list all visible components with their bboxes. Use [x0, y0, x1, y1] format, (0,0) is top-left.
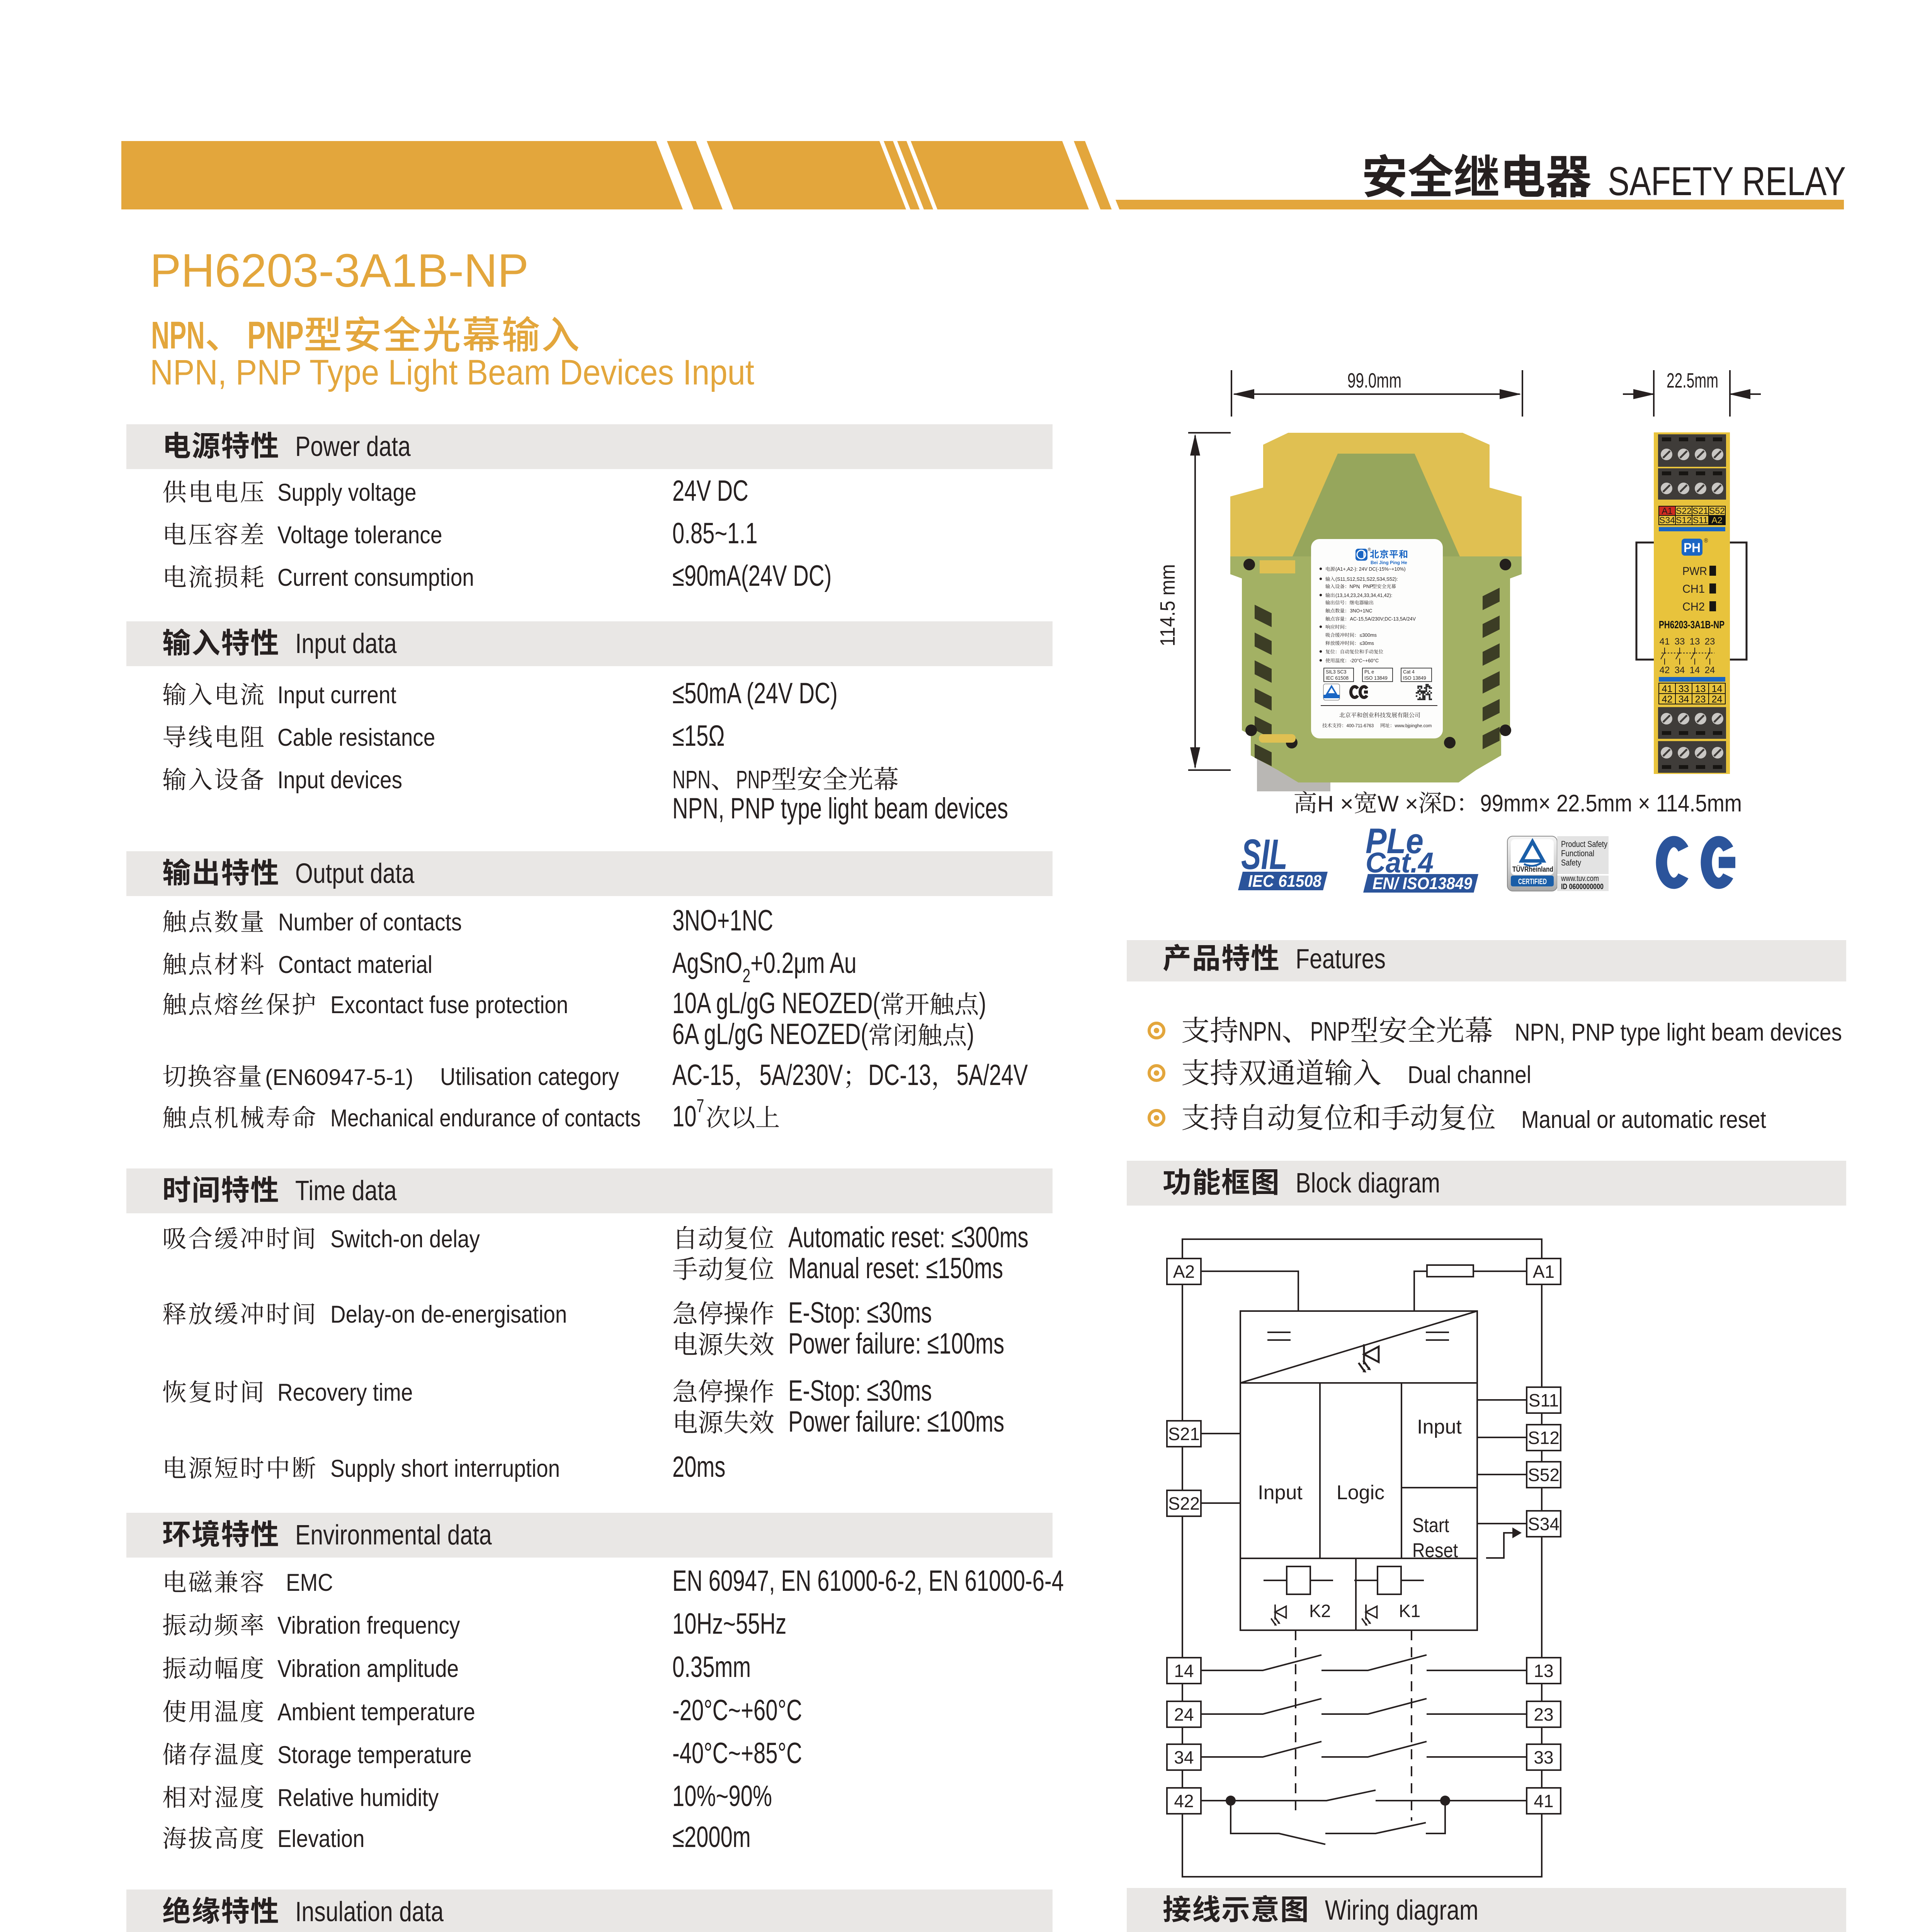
- svg-text:2: 2: [743, 965, 751, 986]
- svg-text:≤15Ω: ≤15Ω: [672, 719, 725, 752]
- svg-text:AC-15,5A/230V;DC-13,5A/24V: AC-15,5A/230V;DC-13,5A/24V: [1350, 616, 1416, 622]
- svg-text:S52: S52: [1528, 1465, 1560, 1485]
- svg-text:Contact material: Contact material: [278, 951, 432, 978]
- svg-text:Input current: Input current: [277, 682, 396, 709]
- svg-text:A1: A1: [1662, 506, 1672, 516]
- svg-text:S22: S22: [1168, 1493, 1200, 1514]
- svg-text:(S11,S12,S21,S22,S34,S52):: (S11,S12,S21,S22,S34,S52):: [1335, 577, 1398, 582]
- svg-text:S34: S34: [1528, 1514, 1560, 1534]
- svg-text:AC-15: AC-15: [672, 1059, 734, 1092]
- svg-text:10: 10: [672, 1100, 697, 1133]
- svg-text:PNP: PNP: [1363, 584, 1373, 589]
- svg-text:®: ®: [1704, 537, 1708, 544]
- svg-text:Utilisation category: Utilisation category: [440, 1063, 619, 1090]
- svg-text:34: 34: [1679, 694, 1689, 705]
- svg-text:PH6203-3A1B-NP: PH6203-3A1B-NP: [1659, 619, 1725, 631]
- svg-text:≤50mA (24V DC): ≤50mA (24V DC): [672, 677, 838, 710]
- svg-text:5A/24V: 5A/24V: [957, 1059, 1028, 1092]
- svg-text:13: 13: [1695, 684, 1706, 694]
- svg-text:): ): [967, 1018, 975, 1051]
- svg-text:NPN: NPN: [151, 314, 205, 357]
- svg-text:Wiring diagram: Wiring diagram: [1325, 1895, 1478, 1926]
- svg-text:24: 24: [1174, 1704, 1194, 1725]
- svg-text:SIL: SIL: [1241, 831, 1287, 878]
- svg-text:Power failure: ≤100ms: Power failure: ≤100ms: [788, 1327, 1004, 1360]
- svg-text:-20°C~+60°C: -20°C~+60°C: [672, 1694, 802, 1727]
- svg-text:Switch-on delay: Switch-on delay: [330, 1226, 480, 1253]
- svg-text:AgSnO: AgSnO: [672, 947, 742, 980]
- svg-text:ID 0600000000: ID 0600000000: [1561, 883, 1604, 891]
- svg-text:41: 41: [1662, 684, 1673, 694]
- svg-text:Dual channel: Dual channel: [1408, 1061, 1531, 1088]
- svg-text:www.tuv.com: www.tuv.com: [1561, 874, 1599, 883]
- svg-text:Relative humidity: Relative humidity: [277, 1784, 439, 1811]
- svg-text:A2: A2: [1173, 1262, 1195, 1282]
- svg-text:Delay-on de-energisation: Delay-on de-energisation: [330, 1301, 567, 1328]
- svg-text:NPN: NPN: [672, 765, 711, 794]
- svg-text:Block diagram: Block diagram: [1296, 1168, 1440, 1199]
- svg-text:-40°C~+85°C: -40°C~+85°C: [672, 1737, 802, 1770]
- svg-text:SAFETY RELAY: SAFETY RELAY: [1608, 159, 1846, 204]
- svg-text:PWR: PWR: [1682, 565, 1707, 578]
- svg-text:Number of contacts: Number of contacts: [278, 909, 462, 936]
- svg-text:24: 24: [1712, 694, 1723, 705]
- svg-text:Recovery time: Recovery time: [277, 1379, 413, 1406]
- svg-text:Insulation data: Insulation data: [295, 1896, 444, 1927]
- svg-text:Mechanical endurance of contac: Mechanical endurance of contacts: [330, 1105, 641, 1132]
- svg-text:5A/230V: 5A/230V: [760, 1059, 843, 1092]
- svg-text:K1: K1: [1399, 1601, 1420, 1621]
- svg-text:Manual or automatic reset: Manual or automatic reset: [1521, 1106, 1766, 1133]
- svg-text:Supply voltage: Supply voltage: [277, 479, 417, 506]
- svg-text:CERTIFIED: CERTIFIED: [1518, 878, 1547, 886]
- svg-text:IEC 61508: IEC 61508: [1326, 675, 1349, 681]
- svg-text:ISO 13849: ISO 13849: [1403, 675, 1426, 681]
- svg-text:Automatic reset: ≤300ms: Automatic reset: ≤300ms: [788, 1221, 1029, 1254]
- svg-text:Voltage tolerance: Voltage tolerance: [277, 522, 442, 549]
- svg-text:34: 34: [1174, 1747, 1194, 1767]
- svg-text:41: 41: [1660, 636, 1670, 647]
- svg-text:Storage temperature: Storage temperature: [277, 1742, 472, 1769]
- svg-text:24V DC: 24V DC: [672, 474, 748, 507]
- svg-text:13: 13: [1690, 636, 1700, 647]
- svg-text:CH1: CH1: [1682, 583, 1705, 595]
- svg-text:33: 33: [1679, 684, 1689, 694]
- svg-text:34: 34: [1675, 665, 1685, 675]
- svg-text:Functional: Functional: [1561, 849, 1594, 858]
- svg-text:S21: S21: [1692, 506, 1708, 516]
- svg-text:(EN60947-5-1): (EN60947-5-1): [265, 1065, 413, 1090]
- svg-text:Cable resistance: Cable resistance: [277, 724, 435, 751]
- svg-text:Safety: Safety: [1561, 858, 1581, 867]
- svg-text:Vibration amplitude: Vibration amplitude: [277, 1655, 459, 1682]
- svg-text:A1: A1: [1533, 1262, 1554, 1282]
- svg-text:20ms: 20ms: [672, 1451, 726, 1483]
- svg-text:IEC 61508: IEC 61508: [1248, 872, 1321, 891]
- svg-text:+0.2μm Au: +0.2μm Au: [750, 947, 857, 980]
- svg-text:Current consumption: Current consumption: [277, 564, 474, 591]
- svg-text:24: 24: [1705, 665, 1715, 675]
- svg-text:CH2: CH2: [1682, 600, 1705, 613]
- svg-text:ISO 13849: ISO 13849: [1364, 675, 1388, 681]
- svg-text:(A1+,A2-): 24V DC(-15%~+10%): (A1+,A2-): 24V DC(-15%~+10%): [1335, 566, 1406, 572]
- svg-text:S22: S22: [1676, 506, 1692, 516]
- svg-text:E-Stop: ≤30ms: E-Stop: ≤30ms: [788, 1296, 932, 1329]
- svg-text:PNP: PNP: [736, 765, 771, 794]
- svg-text:14: 14: [1174, 1661, 1194, 1681]
- svg-text:≤30ms: ≤30ms: [1360, 641, 1374, 646]
- svg-text:NPN: NPN: [1238, 1016, 1282, 1046]
- svg-text:E-Stop: ≤30ms: E-Stop: ≤30ms: [788, 1374, 932, 1407]
- svg-text:6A gL/gG NEOZED(: 6A gL/gG NEOZED(: [672, 1018, 868, 1051]
- svg-text:-20°C~+60°C: -20°C~+60°C: [1350, 658, 1379, 663]
- svg-text:W ×: W ×: [1378, 791, 1418, 816]
- svg-text:Excontact fuse protection: Excontact fuse protection: [330, 992, 568, 1019]
- svg-text:S21: S21: [1168, 1424, 1200, 1444]
- svg-text:PNP: PNP: [1310, 1016, 1350, 1046]
- svg-text:NPN: NPN: [1350, 584, 1360, 589]
- svg-text:Output data: Output data: [295, 858, 415, 889]
- svg-text:22.5mm: 22.5mm: [1667, 369, 1718, 392]
- svg-text:EMC: EMC: [286, 1569, 333, 1596]
- svg-text:0.85~1.1: 0.85~1.1: [672, 517, 758, 550]
- svg-text:400-711-6763: 400-711-6763: [1347, 724, 1374, 728]
- svg-text:3NO+1NC: 3NO+1NC: [1350, 608, 1372, 614]
- svg-text:Elevation: Elevation: [277, 1825, 365, 1852]
- svg-text:NPN, PNP type light beam devic: NPN, PNP type light beam devices: [672, 792, 1008, 825]
- svg-text:EN 60947, EN 61000-6-2, EN 610: EN 60947, EN 61000-6-2, EN 61000-6-4: [672, 1565, 1064, 1597]
- svg-text:Input: Input: [1258, 1481, 1303, 1504]
- svg-text:33: 33: [1534, 1747, 1553, 1767]
- svg-text:A2: A2: [1711, 515, 1722, 525]
- svg-text:PH6203-3A1B-NP: PH6203-3A1B-NP: [150, 244, 529, 297]
- svg-text:Power failure: ≤100ms: Power failure: ≤100ms: [788, 1405, 1004, 1438]
- svg-text:≤2000m: ≤2000m: [672, 1821, 751, 1854]
- svg-text:Supply short interruption: Supply short interruption: [330, 1455, 560, 1482]
- svg-text:10A gL/gG NEOZED(: 10A gL/gG NEOZED(: [672, 987, 880, 1020]
- svg-text:99mm× 22.5mm × 114.5mm: 99mm× 22.5mm × 114.5mm: [1480, 790, 1742, 817]
- svg-text:7: 7: [697, 1096, 704, 1116]
- svg-text:S34: S34: [1659, 515, 1675, 525]
- svg-text:Logic: Logic: [1337, 1481, 1384, 1504]
- svg-text:Input: Input: [1417, 1416, 1462, 1438]
- svg-text:3NO+1NC: 3NO+1NC: [672, 904, 773, 937]
- svg-text:(13,14,23,24,33,34,41,42):: (13,14,23,24,33,34,41,42):: [1335, 593, 1392, 598]
- svg-text:EN/ ISO13849: EN/ ISO13849: [1372, 874, 1472, 893]
- svg-text:Manual reset: ≤150ms: Manual reset: ≤150ms: [788, 1252, 1003, 1285]
- svg-text:42: 42: [1174, 1791, 1194, 1811]
- svg-text:Vibration frequency: Vibration frequency: [277, 1612, 460, 1639]
- svg-text:≤90mA(24V DC): ≤90mA(24V DC): [672, 560, 832, 592]
- svg-text:42: 42: [1660, 665, 1670, 675]
- svg-text:S12: S12: [1676, 515, 1692, 525]
- svg-text:41: 41: [1534, 1791, 1553, 1811]
- svg-text:23: 23: [1534, 1704, 1553, 1725]
- svg-text:NPN, PNP type light beam devic: NPN, PNP type light beam devices: [1515, 1019, 1842, 1046]
- svg-text:D: D: [1442, 791, 1456, 816]
- svg-text:Time data: Time data: [295, 1175, 397, 1206]
- svg-text:14: 14: [1712, 684, 1723, 694]
- svg-text:TÜVRheinland: TÜVRheinland: [1512, 866, 1553, 874]
- svg-text:33: 33: [1675, 636, 1685, 647]
- svg-text:Power data: Power data: [295, 431, 411, 462]
- svg-text:PNP: PNP: [247, 314, 304, 357]
- svg-text:DC-13: DC-13: [868, 1059, 931, 1092]
- svg-text:14: 14: [1690, 665, 1700, 675]
- svg-text:S12: S12: [1528, 1428, 1560, 1448]
- svg-text:23: 23: [1705, 636, 1715, 647]
- svg-text:23: 23: [1695, 694, 1706, 705]
- svg-text:10%~90%: 10%~90%: [672, 1780, 772, 1813]
- svg-text:0.35mm: 0.35mm: [672, 1651, 751, 1684]
- svg-text:S11: S11: [1693, 515, 1708, 525]
- svg-text:Environmental data: Environmental data: [295, 1520, 492, 1551]
- svg-text:NPN, PNP Type Light Beam Devic: NPN, PNP Type Light Beam Devices Input: [150, 353, 754, 392]
- svg-text:Input devices: Input devices: [277, 767, 402, 794]
- svg-text:S52: S52: [1709, 506, 1725, 516]
- svg-text:10Hz~55Hz: 10Hz~55Hz: [672, 1607, 786, 1640]
- svg-text:Features: Features: [1296, 944, 1386, 975]
- svg-text:Ambient temperature: Ambient temperature: [277, 1699, 475, 1726]
- svg-text:Start: Start: [1412, 1514, 1449, 1537]
- svg-text:42: 42: [1662, 694, 1673, 705]
- svg-text:Reset: Reset: [1412, 1539, 1458, 1562]
- svg-text:PL e: PL e: [1364, 669, 1374, 675]
- svg-text:Bei Jing Ping He: Bei Jing Ping He: [1371, 560, 1407, 565]
- svg-text:Input data: Input data: [295, 628, 397, 659]
- svg-text:13: 13: [1534, 1661, 1553, 1681]
- svg-text:H ×: H ×: [1317, 791, 1354, 816]
- svg-text:Product Safety: Product Safety: [1561, 839, 1607, 849]
- svg-text:PH: PH: [1684, 541, 1701, 555]
- svg-text:99.0mm: 99.0mm: [1347, 369, 1401, 392]
- svg-text:®: ®: [1368, 547, 1371, 552]
- svg-text:SIL3 SC3: SIL3 SC3: [1326, 669, 1347, 675]
- svg-text:Cat 4: Cat 4: [1403, 669, 1415, 675]
- svg-text:114.5 mm: 114.5 mm: [1156, 564, 1179, 646]
- svg-text:K2: K2: [1309, 1601, 1331, 1621]
- svg-text:≤300ms: ≤300ms: [1360, 633, 1377, 638]
- svg-text:): ): [979, 987, 986, 1020]
- svg-text:S11: S11: [1529, 1390, 1559, 1410]
- svg-text:www.bjpinghe.com: www.bjpinghe.com: [1395, 724, 1432, 728]
